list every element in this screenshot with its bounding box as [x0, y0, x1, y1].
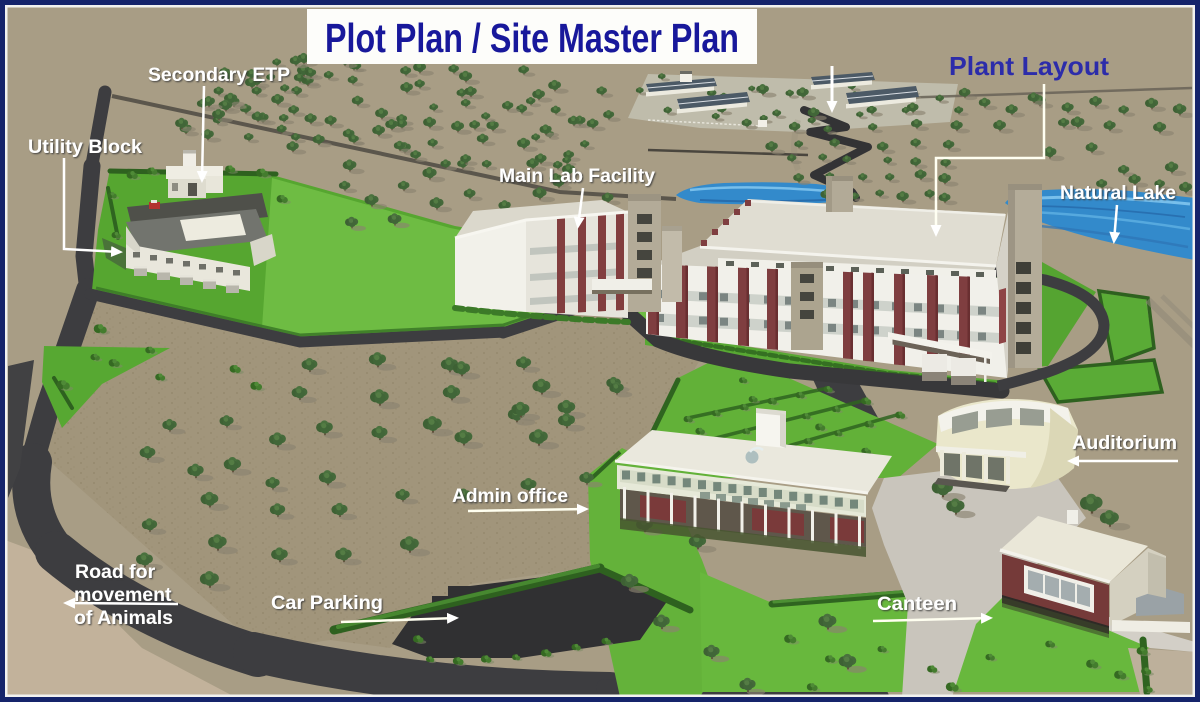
svg-text:of Animals: of Animals: [74, 607, 173, 629]
svg-text:Natural Lake: Natural Lake: [1060, 182, 1176, 204]
svg-text:Utility Block: Utility Block: [28, 136, 142, 158]
svg-text:Car Parking: Car Parking: [271, 592, 383, 614]
svg-text:Plant Layout: Plant Layout: [949, 51, 1109, 81]
svg-text:Main Lab Facility: Main Lab Facility: [499, 165, 655, 187]
svg-text:Road for: Road for: [75, 561, 156, 583]
svg-text:Secondary ETP: Secondary ETP: [148, 64, 290, 86]
svg-text:Admin office: Admin office: [452, 485, 568, 507]
svg-text:Auditorium: Auditorium: [1072, 432, 1177, 454]
svg-text:Canteen: Canteen: [877, 593, 957, 615]
svg-text:Plot Plan / Site Master Plan: Plot Plan / Site Master Plan: [325, 15, 739, 61]
